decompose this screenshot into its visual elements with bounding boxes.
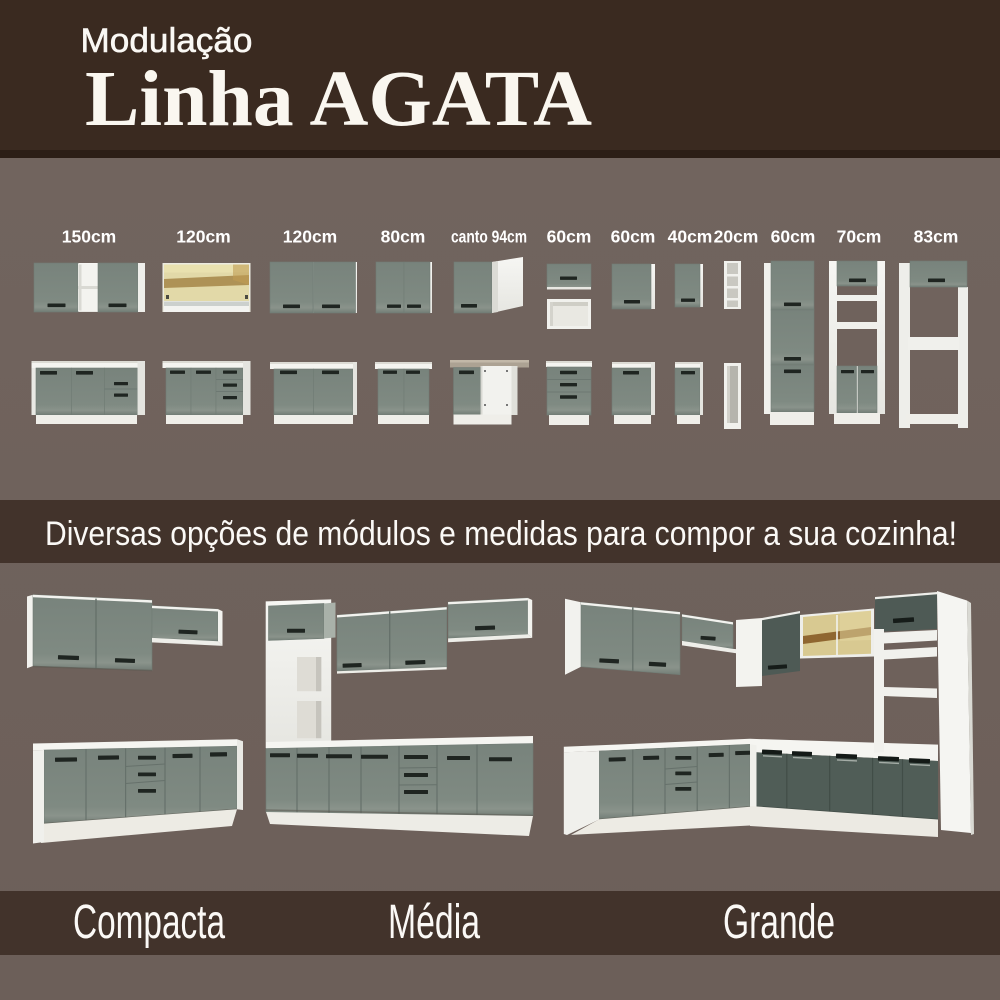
svg-text:150cm: 150cm — [62, 227, 117, 247]
svg-text:Grande: Grande — [723, 896, 835, 949]
svg-text:20cm: 20cm — [714, 227, 759, 247]
svg-text:canto 94cm: canto 94cm — [451, 227, 527, 247]
svg-text:Média: Média — [388, 896, 480, 949]
svg-text:60cm: 60cm — [611, 227, 656, 247]
svg-text:Modulação: Modulação — [81, 22, 253, 60]
svg-text:Diversas opções de módulos e m: Diversas opções de módulos e medidas par… — [45, 515, 957, 553]
svg-text:Linha AGATA: Linha AGATA — [85, 56, 592, 143]
svg-text:120cm: 120cm — [176, 227, 231, 247]
svg-text:Compacta: Compacta — [73, 896, 225, 949]
svg-text:70cm: 70cm — [837, 227, 882, 247]
svg-text:120cm: 120cm — [283, 227, 338, 247]
svg-text:80cm: 80cm — [381, 227, 426, 247]
svg-text:60cm: 60cm — [771, 227, 816, 247]
svg-text:60cm: 60cm — [547, 227, 592, 247]
svg-text:83cm: 83cm — [914, 227, 959, 247]
svg-text:40cm: 40cm — [668, 227, 713, 247]
